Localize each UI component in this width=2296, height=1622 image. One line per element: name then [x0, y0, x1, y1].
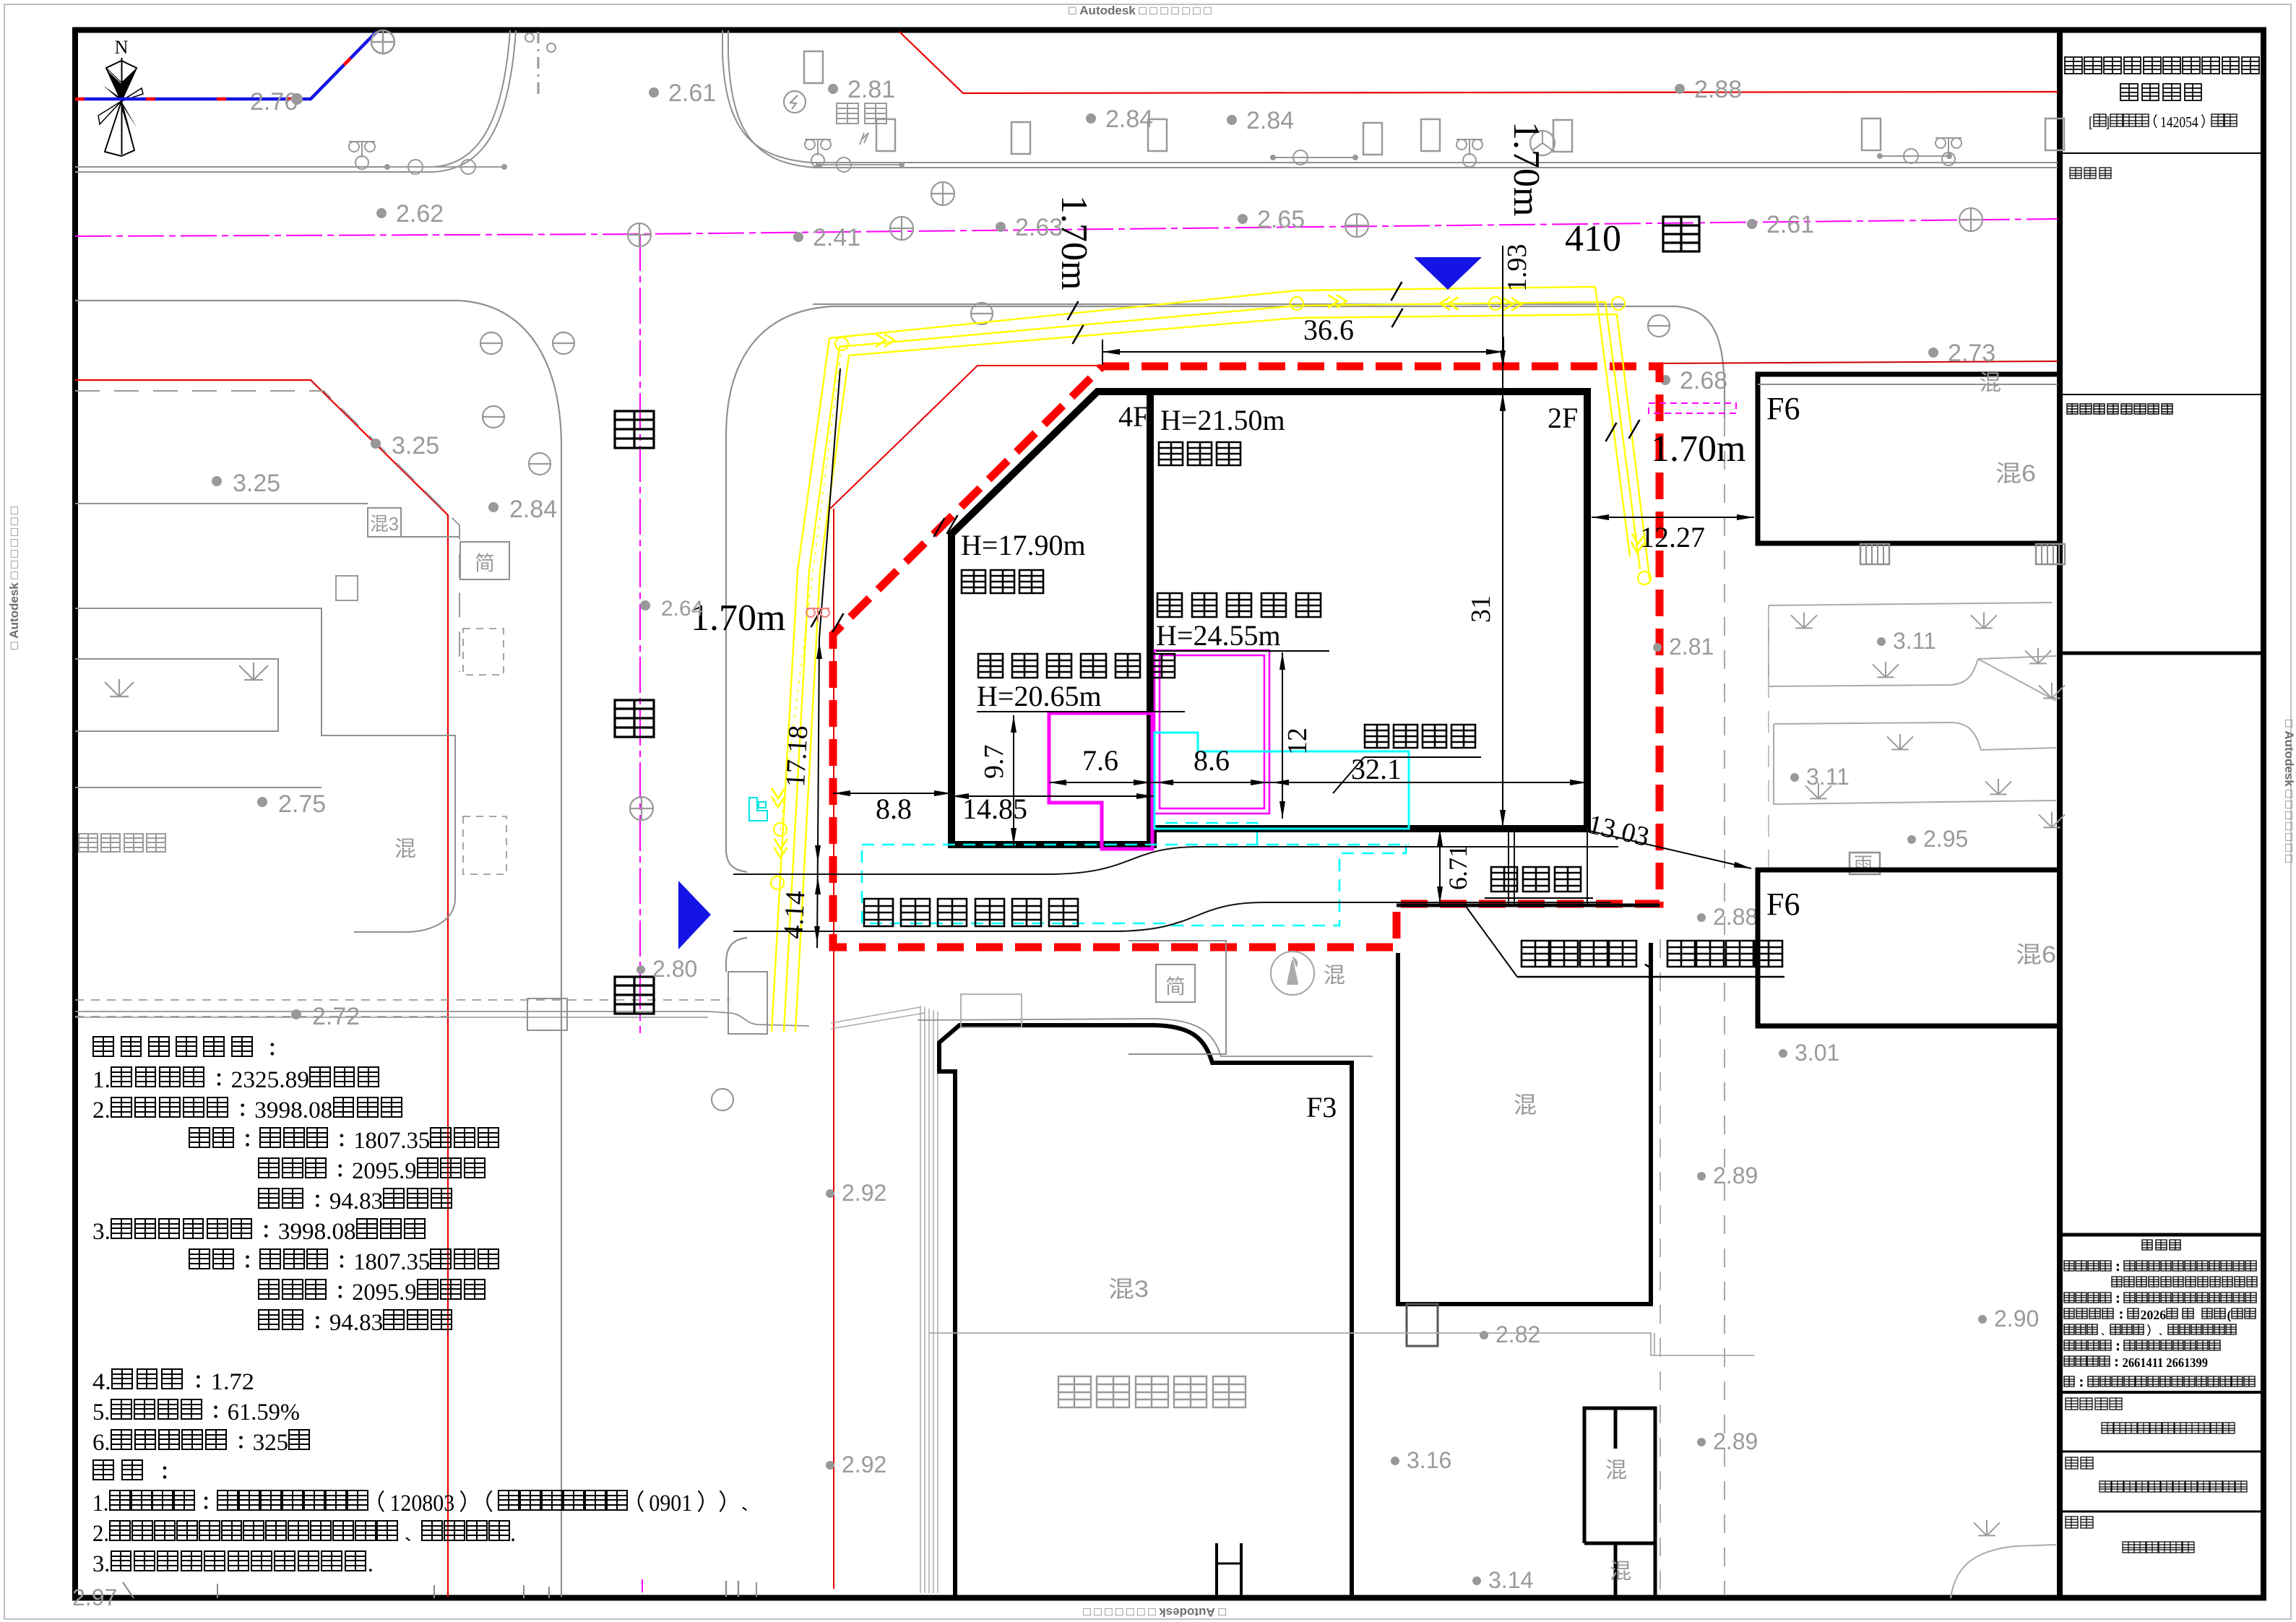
svg-text:2026: 2026: [2141, 1308, 2167, 1322]
svg-text:1.70m: 1.70m: [691, 598, 785, 639]
svg-text:3.01: 3.01: [1795, 1040, 1839, 1066]
svg-text:混3: 混3: [1108, 1276, 1149, 1302]
svg-text:6.: 6.: [92, 1430, 111, 1456]
svg-text:94.83: 94.83: [329, 1310, 383, 1336]
svg-text:7.6: 7.6: [1082, 744, 1118, 777]
svg-text:2.90: 2.90: [1994, 1306, 2039, 1332]
svg-text:2.41: 2.41: [813, 224, 860, 251]
svg-text:2.89: 2.89: [1713, 1162, 1758, 1189]
svg-text:□ Autodesk □ □ □ □ □ □ □: □ Autodesk □ □ □ □ □ □ □: [2282, 720, 2296, 862]
svg-text:4F: 4F: [1118, 400, 1149, 433]
svg-text:1807.35: 1807.35: [353, 1128, 430, 1154]
svg-text:9.7: 9.7: [979, 745, 1009, 780]
svg-text:F6: F6: [1766, 391, 1800, 426]
svg-text:H=21.50m: H=21.50m: [1160, 404, 1285, 436]
svg-text:2.92: 2.92: [842, 1180, 886, 1206]
svg-text:简: 简: [475, 552, 495, 574]
svg-text:17.18: 17.18: [780, 725, 813, 788]
svg-text:2.89: 2.89: [1713, 1428, 1758, 1454]
svg-text:□ Autodesk □ □ □ □ □ □ □: □ Autodesk □ □ □ □ □ □ □: [1069, 4, 1211, 17]
svg-text:3.25: 3.25: [392, 432, 439, 460]
svg-text:2.84: 2.84: [509, 496, 557, 523]
svg-text:1.: 1.: [92, 1491, 108, 1517]
svg-text:2.92: 2.92: [842, 1451, 886, 1478]
svg-text:142054: 142054: [2160, 113, 2198, 131]
svg-text:2.75: 2.75: [278, 790, 326, 818]
svg-text:94.83: 94.83: [329, 1189, 383, 1215]
svg-text:2.61: 2.61: [668, 79, 716, 107]
svg-text:2.: 2.: [92, 1097, 111, 1123]
svg-text:325: 325: [253, 1430, 288, 1456]
svg-text:2F: 2F: [1548, 402, 1578, 434]
svg-text:2.68: 2.68: [1680, 367, 1727, 394]
svg-text:3.16: 3.16: [1407, 1447, 1451, 1473]
svg-text:3.: 3.: [92, 1551, 110, 1577]
svg-text:2.73: 2.73: [1948, 340, 1995, 367]
svg-text:8.6: 8.6: [1194, 744, 1230, 777]
svg-text:2.76: 2.76: [250, 88, 298, 116]
svg-text:8.8: 8.8: [876, 793, 912, 825]
svg-text:1.93: 1.93: [1502, 244, 1532, 293]
svg-text:2661411 2661399: 2661411 2661399: [2123, 1355, 2209, 1370]
svg-text:2.72: 2.72: [312, 1003, 360, 1030]
svg-text:混: 混: [1980, 371, 2001, 395]
svg-text:混: 混: [1610, 1560, 1631, 1584]
svg-text:.: .: [510, 1521, 516, 1547]
svg-text:3998.08: 3998.08: [278, 1219, 356, 1245]
svg-text:6.71: 6.71: [1443, 845, 1472, 890]
svg-text:2.82: 2.82: [1496, 1321, 1540, 1347]
svg-text:混: 混: [1605, 1459, 1627, 1483]
svg-text:H=20.65m: H=20.65m: [977, 680, 1102, 712]
svg-text:2.97: 2.97: [72, 1584, 117, 1610]
svg-text:混6: 混6: [1995, 460, 2036, 486]
svg-text:.: .: [368, 1551, 374, 1577]
svg-text:12: 12: [1282, 728, 1313, 755]
svg-text:2.81: 2.81: [847, 76, 895, 103]
svg-text:12.27: 12.27: [1640, 521, 1705, 553]
svg-text:5.: 5.: [92, 1399, 110, 1425]
svg-text:]: ]: [2105, 113, 2110, 131]
svg-text:2.84: 2.84: [1246, 107, 1294, 134]
svg-text:3.25: 3.25: [233, 470, 280, 497]
svg-text:1807.35: 1807.35: [353, 1249, 430, 1275]
svg-text:3.14: 3.14: [1488, 1567, 1533, 1593]
svg-text:2.80: 2.80: [652, 956, 697, 982]
svg-text:3.11: 3.11: [1806, 764, 1850, 790]
svg-text:2.62: 2.62: [396, 200, 444, 228]
svg-text:2095.9: 2095.9: [352, 1280, 416, 1306]
svg-text:3.11: 3.11: [1893, 628, 1936, 654]
svg-text:2095.9: 2095.9: [352, 1158, 416, 1184]
svg-text:2.88: 2.88: [1694, 76, 1742, 103]
svg-text:□ Autodesk □ □ □ □ □ □ □: □ Autodesk □ □ □ □ □ □ □: [1083, 1605, 1225, 1619]
svg-text:混6: 混6: [2016, 941, 2056, 967]
svg-text:2.88: 2.88: [1713, 904, 1758, 930]
svg-text:2.84: 2.84: [1105, 105, 1153, 133]
svg-text:混3: 混3: [370, 513, 399, 535]
svg-text:2.81: 2.81: [1669, 634, 1714, 660]
svg-text:H=24.55m: H=24.55m: [1156, 619, 1281, 652]
svg-text:61.59%: 61.59%: [228, 1399, 300, 1425]
svg-text:2.61: 2.61: [1766, 211, 1814, 238]
svg-text:[: [: [2089, 113, 2093, 131]
svg-text:1.70m: 1.70m: [1651, 428, 1745, 470]
svg-text:N: N: [115, 37, 129, 58]
svg-text:H=17.90m: H=17.90m: [961, 529, 1086, 561]
svg-text:14.85: 14.85: [962, 793, 1027, 825]
svg-text:4.: 4.: [92, 1369, 111, 1395]
svg-text:4.14: 4.14: [778, 890, 811, 940]
svg-text:(: (: [2227, 1308, 2232, 1322]
svg-text:□ Autodesk □ □ □ □ □ □ □: □ Autodesk □ □ □ □ □ □ □: [7, 506, 21, 649]
svg-text:F3: F3: [1306, 1091, 1337, 1123]
svg-text:混: 混: [1324, 964, 1345, 988]
svg-text:3998.08: 3998.08: [254, 1097, 332, 1123]
svg-text:1.70m: 1.70m: [1053, 195, 1095, 290]
svg-text:1.70m: 1.70m: [1506, 121, 1547, 216]
svg-text:36.6: 36.6: [1303, 314, 1354, 346]
svg-text:31: 31: [1466, 595, 1496, 623]
svg-text:2325.89: 2325.89: [231, 1067, 309, 1093]
svg-text:混: 混: [394, 837, 416, 861]
svg-text:2.65: 2.65: [1257, 206, 1305, 233]
svg-text:混: 混: [1514, 1092, 1537, 1118]
svg-text:简: 简: [1165, 975, 1186, 998]
svg-text:F6: F6: [1766, 887, 1800, 922]
svg-text:2.: 2.: [92, 1521, 109, 1547]
svg-text:3.: 3.: [92, 1219, 111, 1245]
svg-text:410: 410: [1565, 218, 1621, 259]
svg-text:1.72: 1.72: [211, 1369, 254, 1395]
svg-text:0901: 0901: [649, 1491, 692, 1517]
svg-text:120803: 120803: [389, 1491, 454, 1517]
svg-text:2.64: 2.64: [661, 597, 703, 621]
svg-text:2.95: 2.95: [1923, 826, 1968, 852]
svg-text:1.: 1.: [92, 1067, 111, 1093]
